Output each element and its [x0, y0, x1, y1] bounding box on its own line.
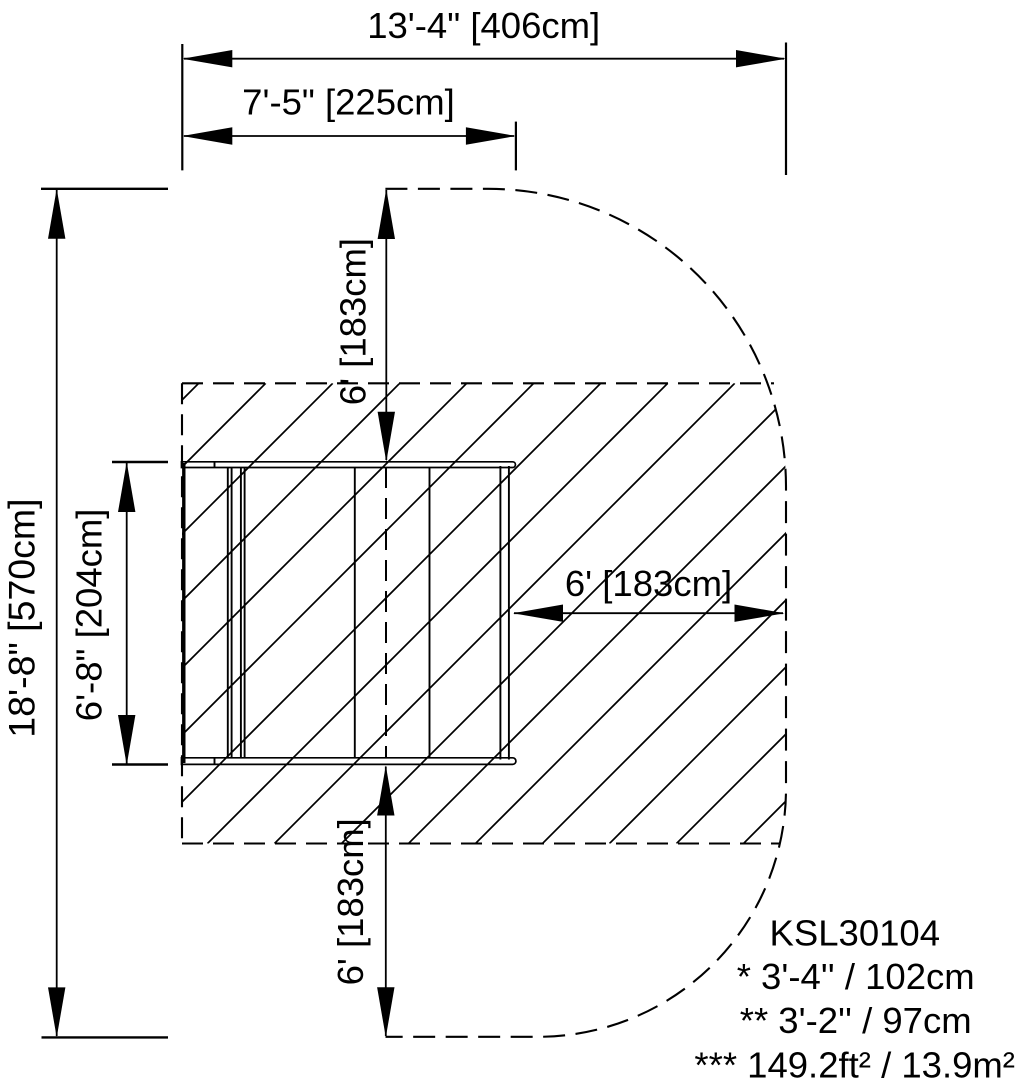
svg-text:6' [183cm]: 6' [183cm]: [332, 238, 373, 405]
svg-text:6' [183cm]: 6' [183cm]: [330, 818, 371, 985]
svg-text:6'-8" [204cm]: 6'-8" [204cm]: [69, 509, 110, 722]
svg-text:* 3'-4'' / 102cm: * 3'-4'' / 102cm: [737, 956, 975, 997]
svg-text:** 3'-2'' / 97cm: ** 3'-2'' / 97cm: [740, 1000, 972, 1041]
svg-text:18'-8" [570cm]: 18'-8" [570cm]: [1, 498, 43, 737]
svg-text:6' [183cm]: 6' [183cm]: [565, 563, 732, 604]
svg-text:13'-4" [406cm]: 13'-4" [406cm]: [367, 5, 600, 46]
svg-text:*** 149.2ft² / 13.9m²: *** 149.2ft² / 13.9m²: [694, 1045, 1015, 1086]
svg-text:KSL30104: KSL30104: [770, 912, 941, 953]
svg-text:7'-5" [225cm]: 7'-5" [225cm]: [242, 81, 455, 122]
